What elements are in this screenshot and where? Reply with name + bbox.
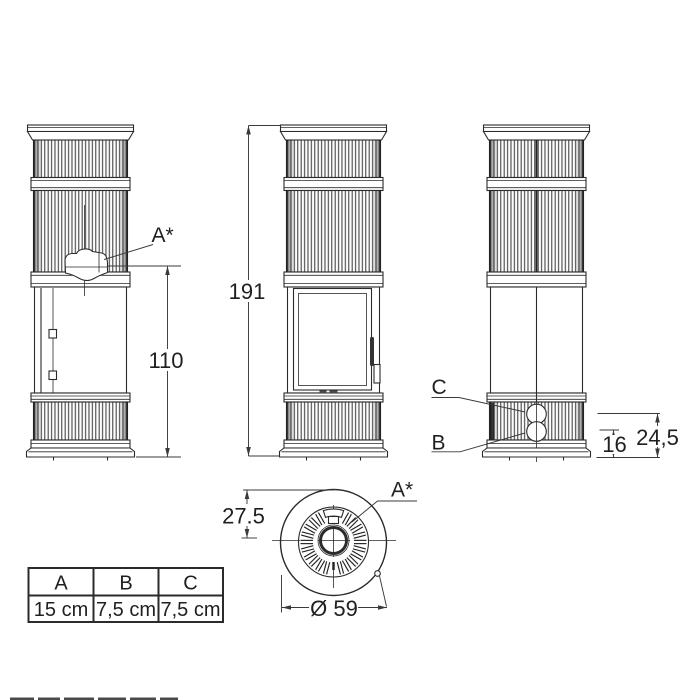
hinge-lower — [49, 371, 57, 380]
label-a-star-top: A* — [391, 479, 413, 502]
door-latch — [374, 365, 380, 384]
vent-slot — [320, 391, 327, 394]
dim-overall-height: 191 — [229, 126, 281, 457]
hinge-upper — [49, 330, 57, 339]
table-value-b: 7,5 cm — [96, 599, 156, 621]
dimensions: 191 110 16 24,5 — [108, 126, 681, 622]
label-outlet-b: B — [432, 432, 446, 455]
drawing-page: 191 110 16 24,5 — [0, 0, 700, 700]
label-a-star-side: A* — [152, 224, 174, 247]
damper-stem — [329, 517, 339, 524]
table-header-c: C — [183, 573, 197, 595]
base-shadow-edge — [490, 403, 495, 440]
dim-top-offset-value: 27.5 — [222, 504, 265, 529]
dim-flue-height-value: 110 — [148, 348, 183, 373]
side-view-right — [483, 125, 591, 462]
label-outlet-c: C — [432, 376, 447, 399]
dim-overall-height-value: 191 — [229, 279, 266, 304]
door-handle — [370, 337, 374, 366]
dim-outlet-c-value: 24,5 — [636, 425, 679, 450]
dim-outlet-b-value: 16 — [602, 432, 626, 457]
spec-table: A B C 15 cm 7,5 cm 7,5 cm — [29, 568, 224, 622]
dim-diameter-value: Ø 59 — [310, 596, 358, 621]
side-view-left — [27, 125, 135, 461]
top-view — [272, 490, 396, 596]
technical-drawing: 191 110 16 24,5 — [0, 0, 700, 700]
stove-torso — [27, 125, 135, 461]
rim-knob — [375, 571, 381, 577]
front-view — [280, 125, 388, 461]
vent-slot — [330, 391, 338, 394]
table-header-a: A — [54, 573, 68, 595]
table-value-c: 7,5 cm — [160, 599, 220, 621]
table-header-b: B — [119, 573, 132, 595]
table-value-a: 15 cm — [34, 599, 88, 621]
dim-outlet-b: 16 — [600, 430, 629, 458]
